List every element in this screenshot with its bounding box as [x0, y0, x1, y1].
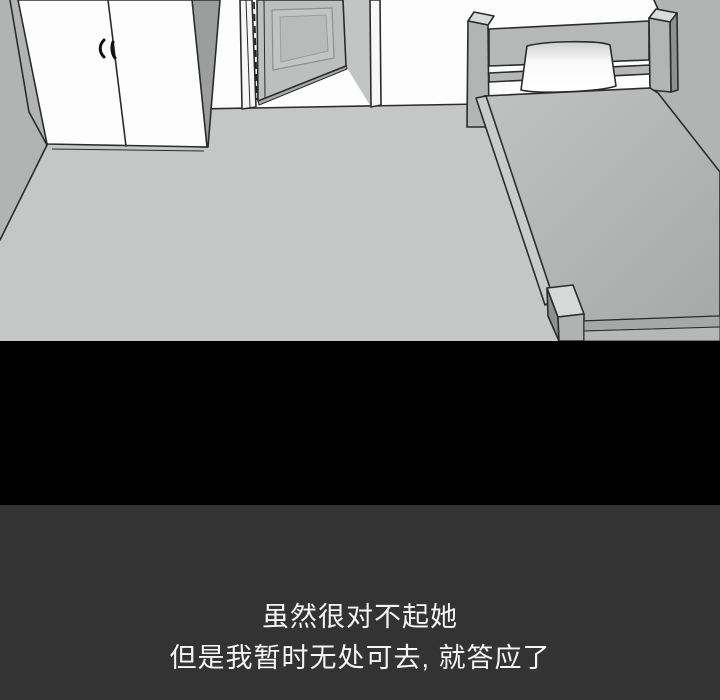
bedroom-scene — [0, 0, 720, 341]
caption-line-1: 虽然很对不起她 — [0, 597, 720, 638]
door-jamb-right — [370, 0, 381, 107]
pillow — [521, 42, 616, 92]
wardrobe-front — [18, 0, 207, 147]
headboard-post-right — [649, 9, 678, 92]
wardrobe — [18, 0, 220, 151]
caption-area: 虽然很对不起她 但是我暂时无处可去, 就答应了 — [0, 505, 720, 700]
webtoon-panel: 虽然很对不起她 但是我暂时无处可去, 就答应了 — [0, 0, 720, 700]
scene-illustration — [0, 0, 720, 341]
black-band — [0, 341, 720, 505]
caption-line-2: 但是我暂时无处可去, 就答应了 — [0, 638, 720, 679]
